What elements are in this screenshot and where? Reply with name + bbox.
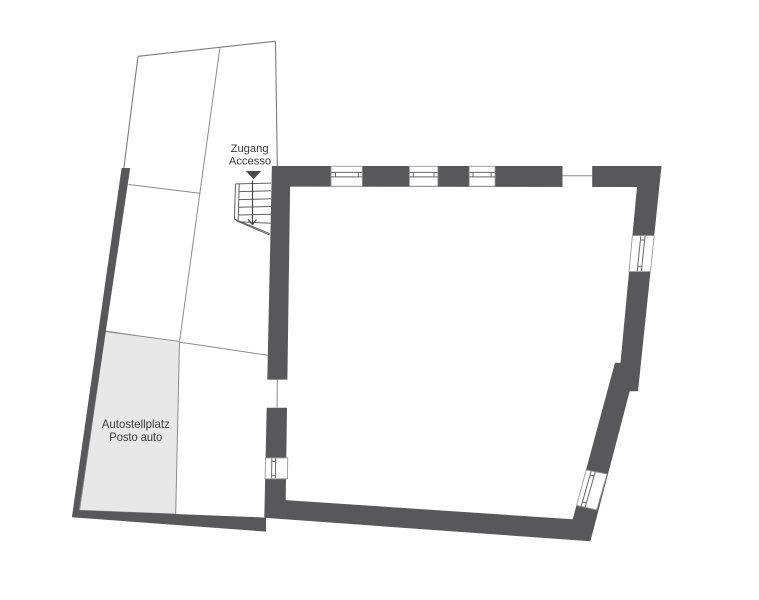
svg-text:Zugang: Zugang: [231, 143, 269, 155]
svg-text:Posto auto: Posto auto: [109, 430, 162, 444]
svg-text:Accesso: Accesso: [229, 155, 271, 167]
